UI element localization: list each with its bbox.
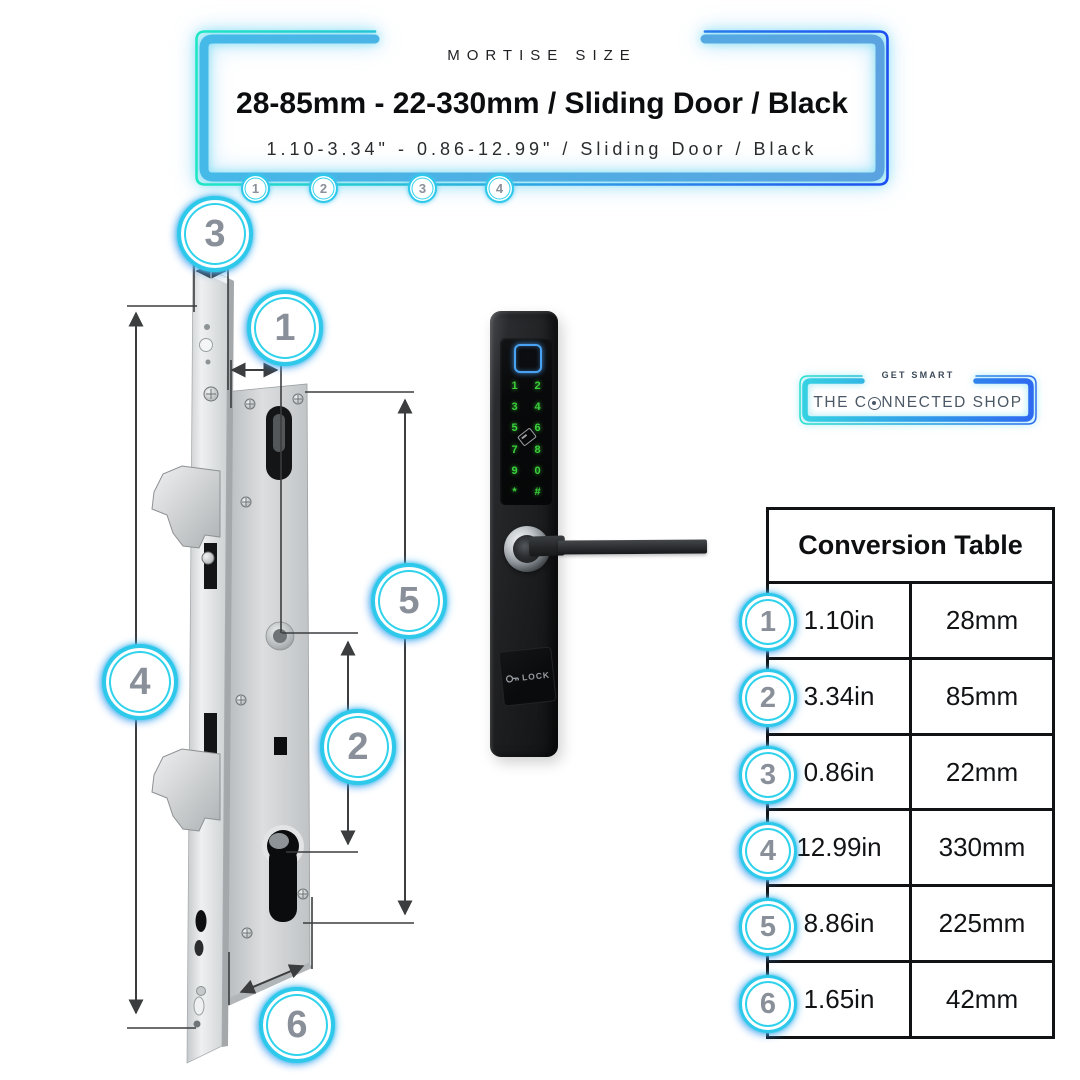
row-badge-3: 3 <box>739 746 797 804</box>
lock-label: LOCK <box>521 669 550 682</box>
cell-mm: 330mm <box>909 811 1052 884</box>
keypad-key-7: 7 <box>511 444 517 456</box>
callout-4: 4 <box>102 644 178 720</box>
lock-case-group <box>224 384 312 1007</box>
header-tick-1: 1 <box>241 174 270 203</box>
keypad-key-6: 6 <box>534 422 540 434</box>
row-badge-2: 2 <box>739 669 797 727</box>
header-box: MORTISE SIZE 28-85mm - 22-330mm / Slidin… <box>193 28 891 188</box>
hook-bottom-shape <box>152 749 220 831</box>
follower-hub-shape <box>266 622 294 650</box>
cell-mm: 22mm <box>909 736 1052 809</box>
keypad-key-1: 1 <box>511 380 517 392</box>
cylinder-hole-shape <box>267 830 299 862</box>
table-title: Conversion Table <box>769 510 1052 584</box>
faceplate-group <box>187 263 234 1063</box>
callout-5: 5 <box>371 563 447 639</box>
page-subtitle: 1.10-3.34" - 0.86-12.99" / Sliding Door … <box>193 139 891 160</box>
brand-name-part1: THE C <box>813 394 867 412</box>
keypad-key-hash: # <box>534 486 540 498</box>
faceplate-side-edge <box>222 278 234 1047</box>
hook-top-shape <box>152 466 220 548</box>
slot-pin <box>273 414 285 452</box>
keypad-key-2: 2 <box>534 380 540 392</box>
fingerprint-sensor-icon <box>514 344 542 373</box>
callout-6: 6 <box>259 987 335 1063</box>
row-badge-5: 5 <box>739 898 797 956</box>
brand-logo: GET SMART THE C NNECTED SHOP <box>798 368 1038 428</box>
faceplate-holes <box>194 324 219 1028</box>
faceplate-shape <box>187 263 228 1063</box>
table-row-5: 8.86in 225mm <box>769 887 1052 963</box>
case-screws <box>236 394 308 938</box>
keypad-key-8: 8 <box>534 444 540 456</box>
hook-slot-bottom <box>204 713 217 763</box>
callout-2: 2 <box>320 709 396 785</box>
brand-name: THE C NNECTED SHOP <box>798 394 1038 412</box>
cylinder-tail <box>269 846 297 922</box>
keypad-key-3: 3 <box>511 401 517 413</box>
cell-mm: 28mm <box>909 584 1052 657</box>
keypad-key-5: 5 <box>511 422 517 434</box>
keypad-key-0: 0 <box>534 465 540 477</box>
square-hole <box>274 737 287 755</box>
table-row-4: 12.99in 330mm <box>769 811 1052 887</box>
cell-mm: 42mm <box>909 963 1052 1036</box>
header-eyebrow: MORTISE SIZE <box>193 47 891 64</box>
row-badge-1: 1 <box>739 593 797 651</box>
keypad-key-4: 4 <box>534 401 540 413</box>
cylinder-plug <box>269 833 289 849</box>
callout-1: 1 <box>247 290 323 366</box>
row-badge-4: 4 <box>739 822 797 880</box>
keypad-key-9: 9 <box>511 465 517 477</box>
header-tick-4: 4 <box>485 174 514 203</box>
measurement-lines <box>127 247 414 1028</box>
keypad-key-star: * <box>512 486 516 498</box>
lock-label-panel: LOCK <box>498 646 556 706</box>
key-icon <box>504 671 519 684</box>
hook-bolts <box>152 466 220 831</box>
follower-center <box>273 629 287 643</box>
row-badge-6: 6 <box>739 975 797 1033</box>
table-row-3: 0.86in 22mm <box>769 736 1052 812</box>
lock-case-shape <box>224 384 310 1002</box>
conversion-table: Conversion Table 1.10in 28mm 3.34in 85mm… <box>766 507 1055 1039</box>
handle-lever <box>558 539 707 554</box>
table-row-1: 1.10in 28mm <box>769 584 1052 660</box>
hook-slot-top <box>204 543 217 589</box>
header-tick-2: 2 <box>309 174 338 203</box>
slot-hole-shape <box>266 406 292 480</box>
infographic-canvas: MORTISE SIZE 28-85mm - 22-330mm / Slidin… <box>0 0 1080 1080</box>
cell-mm: 85mm <box>909 660 1052 733</box>
header-tick-3: 3 <box>408 174 437 203</box>
table-row-6: 1.65in 42mm <box>769 963 1052 1036</box>
wifi-o-icon <box>868 397 881 410</box>
cell-mm: 225mm <box>909 887 1052 960</box>
page-title: 28-85mm - 22-330mm / Sliding Door / Blac… <box>193 87 891 121</box>
table-row-2: 3.34in 85mm <box>769 660 1052 736</box>
callout-3: 3 <box>177 196 253 272</box>
brand-name-part2: NNECTED SHOP <box>881 394 1022 412</box>
cylinder-boss <box>262 825 304 867</box>
